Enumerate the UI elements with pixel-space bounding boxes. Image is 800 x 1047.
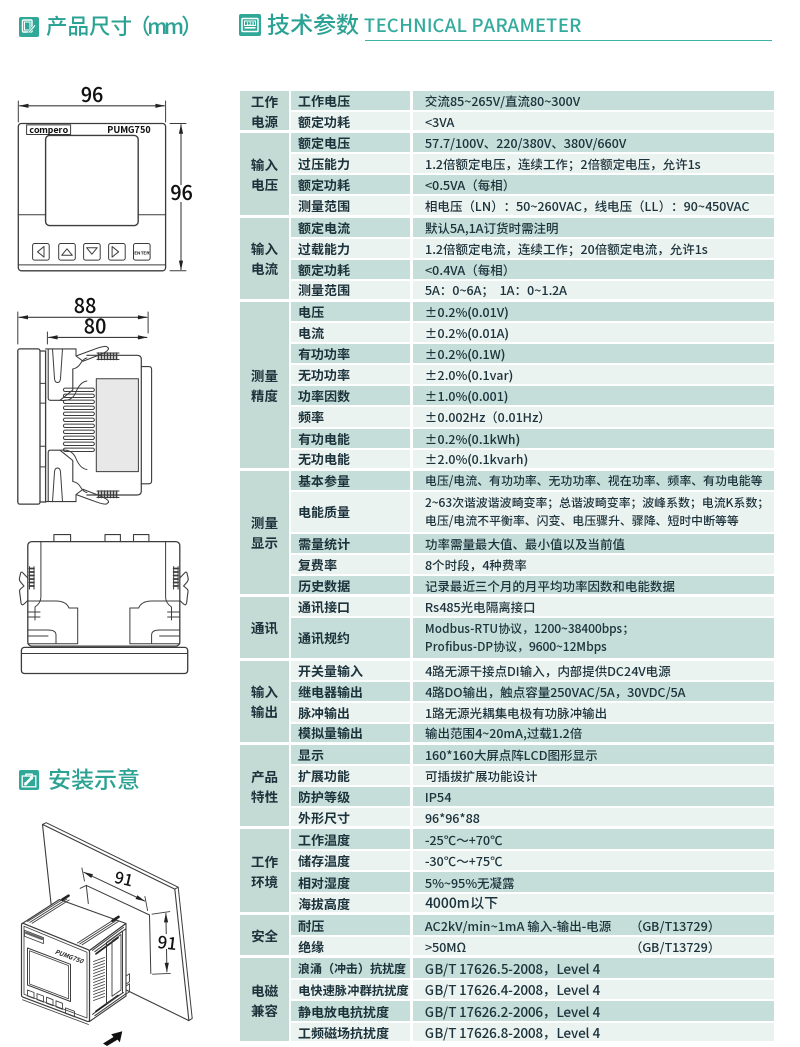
- svg-text:123: 123: [246, 20, 254, 26]
- svg-text:96: 96: [81, 79, 104, 108]
- svg-text:96: 96: [170, 177, 193, 206]
- svg-text:PUMG750: PUMG750: [107, 122, 151, 136]
- svg-text:compero: compero: [29, 123, 68, 136]
- svg-text:91: 91: [112, 864, 135, 891]
- svg-text:ENTER: ENTER: [134, 250, 149, 256]
- svg-text:91: 91: [156, 928, 178, 955]
- svg-text:80: 80: [84, 311, 107, 340]
